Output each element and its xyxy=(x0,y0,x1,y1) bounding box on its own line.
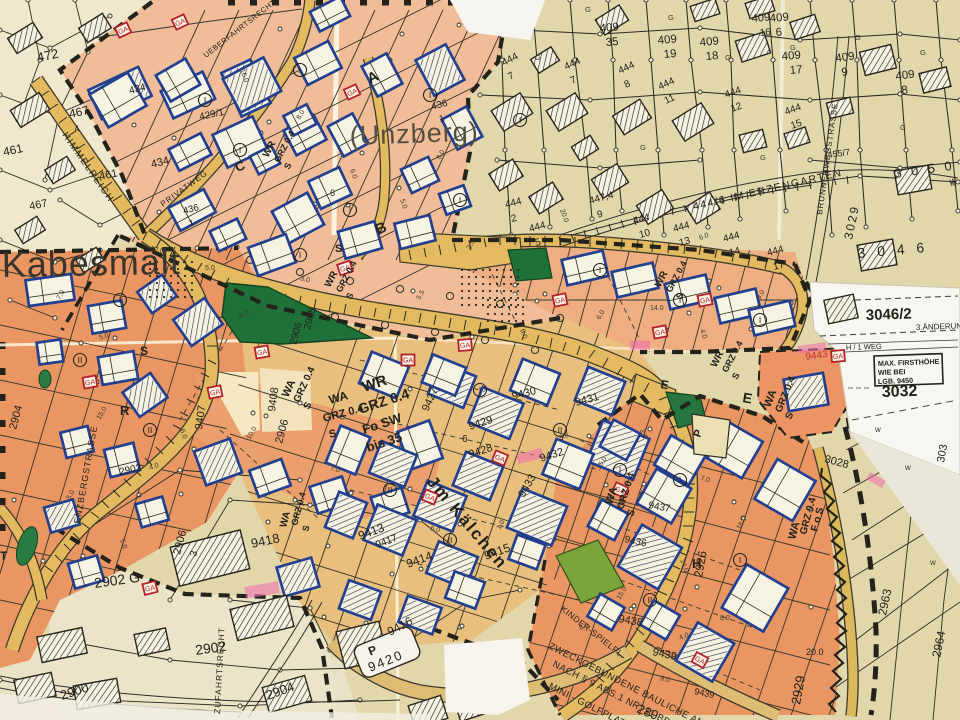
svg-text:G: G xyxy=(855,33,861,42)
svg-text:GA: GA xyxy=(403,358,413,365)
svg-text:3032: 3032 xyxy=(882,383,918,401)
svg-text:(Unzberg): (Unzberg) xyxy=(349,117,479,151)
svg-text:II: II xyxy=(448,535,453,545)
svg-text:GA: GA xyxy=(833,353,844,361)
svg-text:H / 1 WEG: H / 1 WEG xyxy=(846,342,882,352)
svg-text:19: 19 xyxy=(663,48,677,61)
svg-text:6: 6 xyxy=(462,434,468,445)
svg-text:G: G xyxy=(900,123,906,132)
svg-text:I: I xyxy=(239,145,241,155)
svg-text:3046/2: 3046/2 xyxy=(866,305,912,324)
svg-text:I: I xyxy=(679,475,681,485)
svg-text:18: 18 xyxy=(705,50,719,63)
svg-text:409: 409 xyxy=(699,35,719,49)
svg-text:409: 409 xyxy=(657,33,677,47)
svg-text:S: S xyxy=(140,344,148,358)
svg-text:I: I xyxy=(599,265,601,275)
svg-text:I: I xyxy=(299,65,301,75)
svg-text:I: I xyxy=(759,315,761,325)
svg-text:S: S xyxy=(335,243,342,255)
svg-text:I: I xyxy=(299,250,301,260)
svg-text:I: I xyxy=(349,205,351,215)
svg-text:w: w xyxy=(874,425,881,434)
svg-text:I: I xyxy=(119,295,121,305)
svg-text:409: 409 xyxy=(769,11,789,25)
svg-text:II: II xyxy=(388,485,393,495)
svg-text:I: I xyxy=(429,90,431,100)
svg-text:3.ÄNDERUN: 3.ÄNDERUN xyxy=(916,321,960,332)
svg-text:G: G xyxy=(668,13,674,22)
svg-text:T: T xyxy=(0,549,8,563)
svg-text:17: 17 xyxy=(789,64,803,77)
svg-text:II: II xyxy=(648,595,653,605)
svg-text:G: G xyxy=(760,153,766,162)
svg-text:II: II xyxy=(148,425,153,435)
svg-text:I: I xyxy=(619,465,621,475)
svg-text:6: 6 xyxy=(775,26,782,39)
svg-text:I: I xyxy=(479,385,481,395)
svg-text:5.0: 5.0 xyxy=(205,265,215,272)
svg-text:G: G xyxy=(920,48,926,57)
svg-text:409: 409 xyxy=(599,21,619,35)
svg-text:II: II xyxy=(78,355,83,365)
svg-text:R: R xyxy=(120,403,130,418)
svg-text:G: G xyxy=(725,53,731,62)
svg-text:409: 409 xyxy=(751,11,770,25)
svg-text:16: 16 xyxy=(759,27,771,39)
svg-text:I: I xyxy=(519,115,521,125)
svg-text:GA: GA xyxy=(460,342,471,350)
svg-text:35: 35 xyxy=(605,36,619,49)
svg-text:14.0: 14.0 xyxy=(650,305,664,312)
svg-text:G: G xyxy=(640,143,646,152)
svg-text:20.0: 20.0 xyxy=(806,647,824,657)
svg-text:409: 409 xyxy=(781,49,801,63)
svg-text:w: w xyxy=(929,558,936,567)
svg-text:G: G xyxy=(535,53,541,62)
svg-text:I: I xyxy=(739,555,741,565)
svg-text:I: I xyxy=(204,95,206,105)
svg-text:w: w xyxy=(904,463,911,472)
svg-text:6: 6 xyxy=(330,188,335,198)
svg-text:G: G xyxy=(585,5,591,14)
svg-text:8.0: 8.0 xyxy=(720,615,730,622)
svg-text:Kabesmalt: Kabesmalt xyxy=(1,241,181,285)
svg-text:I: I xyxy=(459,195,461,205)
